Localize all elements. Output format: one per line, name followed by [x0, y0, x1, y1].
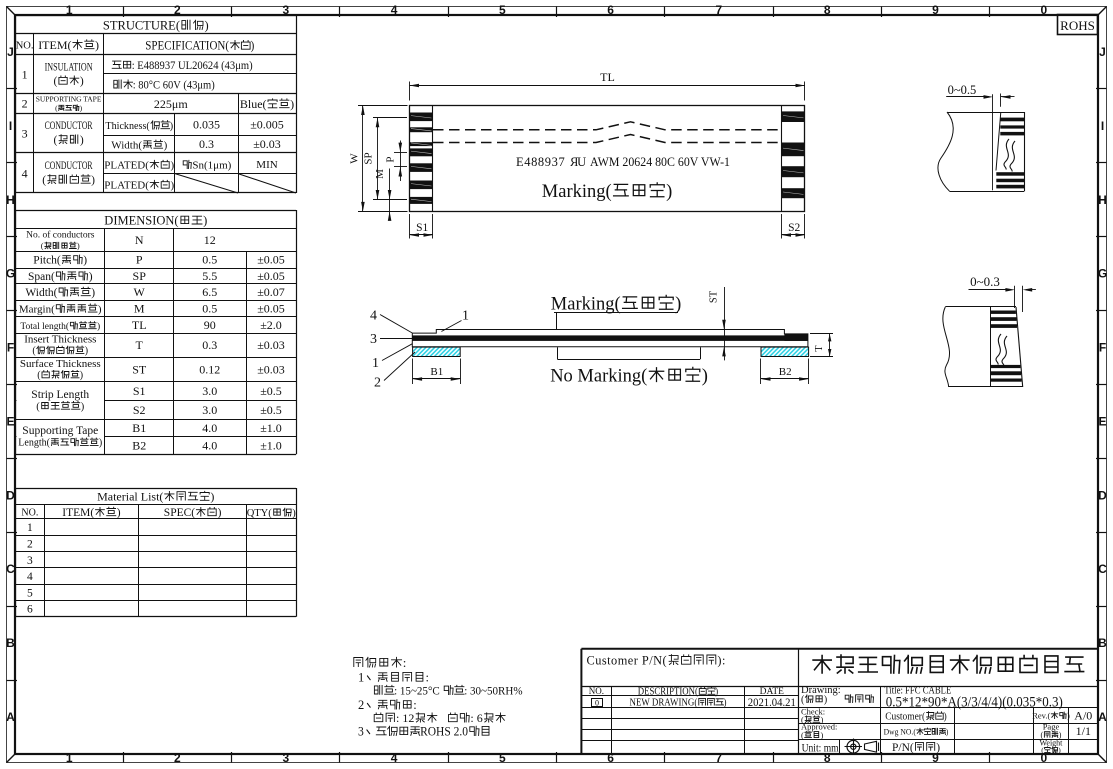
- svg-text:M: M: [134, 301, 145, 315]
- svg-text:6: 6: [607, 3, 614, 17]
- svg-text:): ): [91, 287, 95, 299]
- svg-text:±0.5: ±0.5: [260, 403, 282, 417]
- svg-text:2: 2: [174, 751, 181, 765]
- svg-text:2: 2: [22, 97, 28, 111]
- svg-text:DIMENSION(: DIMENSION(: [104, 214, 178, 228]
- svg-text:ROHS 2.0: ROHS 2.0: [420, 725, 468, 739]
- svg-text:±1.0: ±1.0: [260, 439, 282, 453]
- svg-text:): ): [821, 730, 824, 740]
- svg-text:12: 12: [204, 233, 216, 247]
- svg-text:W: W: [349, 153, 361, 164]
- svg-text:SP: SP: [133, 269, 147, 283]
- svg-text:0~0.5: 0~0.5: [948, 83, 977, 97]
- svg-text:0.5: 0.5: [202, 301, 217, 315]
- svg-text:±2.0: ±2.0: [260, 318, 282, 332]
- svg-text:3: 3: [358, 725, 364, 739]
- svg-text:2: 2: [27, 539, 33, 551]
- svg-text:): ): [944, 712, 948, 723]
- svg-text:2: 2: [358, 698, 364, 712]
- svg-text:C: C: [6, 562, 15, 576]
- svg-text:3.0: 3.0: [202, 384, 217, 398]
- svg-text:): ): [292, 508, 296, 519]
- svg-text:4: 4: [22, 167, 28, 181]
- svg-text:ST: ST: [132, 363, 147, 377]
- svg-text:: 30~50RH%: : 30~50RH%: [464, 684, 522, 698]
- svg-text:E488937: E488937: [516, 155, 565, 169]
- svg-text:S1: S1: [133, 384, 146, 398]
- svg-text:4: 4: [391, 751, 398, 765]
- svg-text:: 15~25°C: : 15~25°C: [394, 684, 442, 698]
- svg-text:±0.5: ±0.5: [260, 384, 282, 398]
- svg-text:SPECIFICATION(: SPECIFICATION(: [145, 39, 229, 53]
- svg-text:9: 9: [932, 3, 939, 17]
- svg-text:Rev.(: Rev.(: [1032, 711, 1050, 721]
- svg-text:Supporting Tape: Supporting Tape: [22, 425, 98, 437]
- svg-text:): ): [936, 742, 940, 754]
- svg-text:ST: ST: [709, 290, 720, 303]
- svg-text:F: F: [7, 341, 14, 355]
- svg-text:Marking(: Marking(: [551, 295, 621, 315]
- svg-text:AWM 20624 80C 60V VW-1: AWM 20624 80C 60V VW-1: [590, 155, 730, 169]
- svg-text:): ): [205, 19, 209, 33]
- svg-text:): ): [80, 370, 83, 381]
- svg-text:): ): [171, 160, 175, 172]
- svg-text:): ): [946, 727, 949, 737]
- svg-text:S2: S2: [788, 222, 800, 234]
- svg-text:No. of conductors: No. of conductors: [26, 230, 95, 241]
- svg-text:): ): [98, 303, 102, 315]
- svg-text:5: 5: [499, 751, 506, 765]
- svg-text::: :: [403, 655, 407, 670]
- svg-text:4: 4: [370, 309, 377, 324]
- svg-text:±0.07: ±0.07: [257, 285, 285, 299]
- svg-text:3.0: 3.0: [202, 403, 217, 417]
- svg-text:E: E: [1098, 415, 1106, 429]
- svg-text:ITEM(: ITEM(: [62, 507, 94, 519]
- svg-text:0.3: 0.3: [202, 338, 217, 352]
- svg-text:SP: SP: [363, 152, 375, 164]
- svg-text:B1: B1: [430, 366, 443, 378]
- svg-text:B: B: [6, 636, 15, 650]
- svg-text:): ): [251, 39, 255, 53]
- svg-text:NEW DRAWING(: NEW DRAWING(: [630, 698, 698, 709]
- svg-text:6: 6: [27, 604, 33, 616]
- svg-text:): ): [666, 182, 672, 202]
- svg-text:NO.: NO.: [16, 41, 34, 52]
- svg-text:): ): [1067, 711, 1070, 721]
- svg-text:Strip Length: Strip Length: [31, 389, 89, 401]
- svg-text:P: P: [136, 253, 143, 267]
- svg-text:4: 4: [391, 3, 398, 17]
- svg-text:1: 1: [372, 356, 379, 371]
- svg-text:TL: TL: [132, 318, 147, 332]
- svg-text:±0.05: ±0.05: [257, 253, 285, 267]
- svg-text:Customer P/N(: Customer P/N(: [587, 653, 668, 668]
- svg-text:: 80°C 60V (43μm): : 80°C 60V (43μm): [133, 78, 215, 92]
- svg-text:ЯU: ЯU: [570, 155, 586, 169]
- svg-text:5: 5: [27, 587, 33, 599]
- svg-text:1: 1: [462, 309, 469, 324]
- svg-text:225μm: 225μm: [154, 97, 188, 111]
- svg-text:3: 3: [27, 555, 33, 567]
- svg-text:±0.03: ±0.03: [253, 137, 281, 151]
- svg-text:):: ):: [717, 653, 726, 668]
- svg-text:): ): [675, 295, 681, 315]
- svg-text:ROHS: ROHS: [1060, 18, 1095, 33]
- svg-text:PLATED(: PLATED(: [104, 180, 149, 192]
- svg-text:): ): [97, 321, 100, 332]
- svg-text:(: (: [801, 730, 804, 740]
- svg-text:Blue(: Blue(: [240, 97, 267, 111]
- svg-text:: E488937 UL20624 (43μm): : E488937 UL20624 (43μm): [132, 58, 253, 72]
- svg-text:B: B: [1098, 636, 1107, 650]
- svg-text:B2: B2: [779, 366, 792, 378]
- svg-text:A: A: [6, 710, 15, 724]
- svg-text:±0.03: ±0.03: [257, 338, 285, 352]
- svg-text:Pitch(: Pitch(: [33, 255, 61, 267]
- svg-text:±0.05: ±0.05: [257, 301, 285, 315]
- svg-text:D: D: [6, 488, 15, 502]
- svg-text:B2: B2: [132, 439, 146, 453]
- svg-text:T: T: [136, 338, 144, 352]
- svg-text:1: 1: [66, 751, 73, 765]
- svg-text:Width(: Width(: [111, 140, 142, 152]
- svg-text:Span(: Span(: [28, 271, 55, 283]
- svg-text:0~0.3: 0~0.3: [970, 274, 1000, 289]
- svg-text:0: 0: [595, 698, 599, 707]
- svg-text:0.3: 0.3: [199, 137, 214, 151]
- svg-text:NO.: NO.: [21, 508, 38, 519]
- svg-text:): ): [702, 367, 708, 387]
- svg-text:N: N: [135, 233, 144, 247]
- svg-text:G: G: [1098, 267, 1107, 281]
- svg-text:1: 1: [358, 671, 364, 685]
- svg-text:B1: B1: [132, 421, 146, 435]
- svg-text:No Marking(: No Marking(: [550, 367, 647, 387]
- svg-text:E: E: [6, 415, 14, 429]
- svg-text:): ): [824, 695, 827, 706]
- svg-text:P: P: [385, 156, 397, 162]
- svg-text:Customer(: Customer(: [885, 712, 925, 723]
- svg-text:): ): [99, 438, 102, 449]
- svg-text:Drawing:: Drawing:: [801, 685, 841, 696]
- svg-text:1: 1: [27, 522, 33, 534]
- svg-text::: :: [426, 671, 429, 685]
- svg-text:): ): [85, 346, 88, 357]
- svg-text:2021.04.21: 2021.04.21: [748, 695, 796, 709]
- svg-text:Length(: Length(: [18, 438, 50, 449]
- svg-text:Marking(: Marking(: [542, 182, 612, 202]
- svg-text:SPEC(: SPEC(: [164, 507, 195, 519]
- svg-text:Surface Thickness: Surface Thickness: [20, 358, 101, 370]
- svg-text:7: 7: [716, 3, 723, 17]
- svg-text:W: W: [134, 285, 146, 299]
- svg-text:Insert Thickness: Insert Thickness: [24, 334, 96, 346]
- svg-text:±0.005: ±0.005: [250, 118, 284, 132]
- svg-text:NO.: NO.: [589, 686, 604, 696]
- svg-text:CONDUCTOR: CONDUCTOR: [45, 160, 93, 172]
- svg-text:): ): [715, 687, 718, 698]
- svg-text:): ): [80, 135, 84, 147]
- svg-text:): ): [95, 38, 99, 52]
- svg-text:): ): [290, 97, 294, 111]
- svg-text:(: (: [54, 76, 58, 88]
- svg-text:6.5: 6.5: [202, 285, 217, 299]
- svg-text:PLATED(: PLATED(: [104, 160, 149, 172]
- svg-text:): ): [91, 175, 95, 187]
- svg-text:3: 3: [370, 332, 377, 347]
- svg-text:Page: Page: [1043, 722, 1060, 732]
- svg-text:6: 6: [607, 751, 614, 765]
- svg-text:): ): [117, 507, 121, 519]
- svg-text:4.0: 4.0: [202, 439, 217, 453]
- svg-text:STRUCTURE(: STRUCTURE(: [103, 19, 180, 33]
- svg-text:G: G: [6, 267, 15, 281]
- svg-text:±0.03: ±0.03: [257, 363, 285, 377]
- svg-text:INSULATION: INSULATION: [45, 62, 93, 74]
- svg-text:3: 3: [282, 751, 289, 765]
- svg-text:4.0: 4.0: [202, 421, 217, 435]
- svg-text:±1.0: ±1.0: [260, 421, 282, 435]
- svg-text:): ): [89, 271, 93, 283]
- svg-text:90: 90: [204, 318, 216, 332]
- svg-text:H: H: [6, 193, 15, 207]
- svg-text:0.12: 0.12: [199, 363, 220, 377]
- svg-text:SUPPORTING TAPE: SUPPORTING TAPE: [36, 95, 102, 104]
- svg-text:5: 5: [499, 3, 506, 17]
- svg-text:2: 2: [374, 376, 381, 391]
- svg-text:): ): [210, 490, 214, 504]
- svg-text:MIN: MIN: [256, 159, 277, 171]
- svg-text:0.5*12*90*A(3/3/4/4)(0.035*0.3: 0.5*12*90*A(3/3/4/4)(0.035*0.3): [886, 694, 1063, 710]
- svg-text:): ): [83, 255, 87, 267]
- svg-text:H: H: [1098, 193, 1107, 207]
- svg-text:C: C: [1098, 562, 1107, 576]
- svg-text:S2: S2: [133, 403, 146, 417]
- svg-text:): ): [203, 214, 207, 228]
- svg-text:5.5: 5.5: [202, 269, 217, 283]
- svg-text:0: 0: [1040, 3, 1047, 17]
- svg-text:CONDUCTOR: CONDUCTOR: [45, 120, 93, 132]
- svg-text:Margin(: Margin(: [19, 303, 55, 315]
- svg-text:): ): [81, 402, 85, 413]
- svg-text:(: (: [41, 241, 44, 251]
- svg-text:0.035: 0.035: [193, 118, 220, 132]
- svg-text:J: J: [1099, 45, 1106, 59]
- svg-text:P/N(: P/N(: [892, 742, 914, 754]
- svg-text:): ): [724, 698, 727, 709]
- svg-text:J: J: [7, 45, 14, 59]
- svg-text:3: 3: [22, 127, 28, 141]
- svg-text:Unit: mm: Unit: mm: [802, 743, 839, 755]
- svg-text:): ): [218, 507, 222, 519]
- svg-text:7: 7: [716, 751, 723, 765]
- svg-text:1/1: 1/1: [1076, 724, 1091, 738]
- svg-text:: 6: : 6: [470, 711, 482, 725]
- svg-text:±0.05: ±0.05: [257, 269, 285, 283]
- svg-text:): ): [170, 120, 174, 132]
- svg-text:Approved:: Approved:: [801, 721, 837, 731]
- svg-text:1: 1: [22, 68, 28, 82]
- svg-text:T: T: [814, 345, 825, 351]
- svg-text:): ): [164, 140, 168, 152]
- svg-text:S1: S1: [416, 222, 428, 234]
- svg-text:Thickness(: Thickness(: [105, 120, 150, 132]
- svg-text:Sn(1μm): Sn(1μm): [192, 160, 231, 172]
- svg-text:TL: TL: [600, 70, 615, 84]
- svg-text:A/0: A/0: [1074, 709, 1092, 723]
- svg-text:): ): [171, 180, 175, 192]
- svg-text:M: M: [374, 169, 386, 179]
- svg-text:Width(: Width(: [25, 287, 57, 299]
- svg-text:ITEM(: ITEM(: [38, 38, 71, 52]
- svg-text:D: D: [1098, 488, 1107, 502]
- svg-text:Total length(: Total length(: [20, 321, 69, 332]
- svg-text:(: (: [42, 175, 46, 187]
- svg-text:): ): [77, 241, 80, 251]
- svg-text:QTY(: QTY(: [247, 508, 273, 519]
- svg-text:A: A: [1098, 710, 1107, 724]
- svg-text:F: F: [1099, 341, 1106, 355]
- svg-text:0.5: 0.5: [202, 253, 217, 267]
- svg-text:I: I: [1101, 119, 1104, 133]
- svg-text:DESCRIPTION(: DESCRIPTION(: [638, 687, 699, 698]
- svg-text::: :: [413, 698, 416, 712]
- svg-text:I: I: [9, 119, 12, 133]
- svg-text:(: (: [54, 135, 58, 147]
- svg-text:(: (: [36, 402, 40, 413]
- svg-text:): ): [80, 76, 84, 88]
- svg-text:Dwg NO.(: Dwg NO.(: [884, 727, 916, 737]
- svg-text:4: 4: [27, 571, 33, 583]
- svg-text:8: 8: [824, 3, 831, 17]
- svg-text:: 12: : 12: [396, 711, 414, 725]
- svg-text:Material List(: Material List(: [97, 490, 163, 504]
